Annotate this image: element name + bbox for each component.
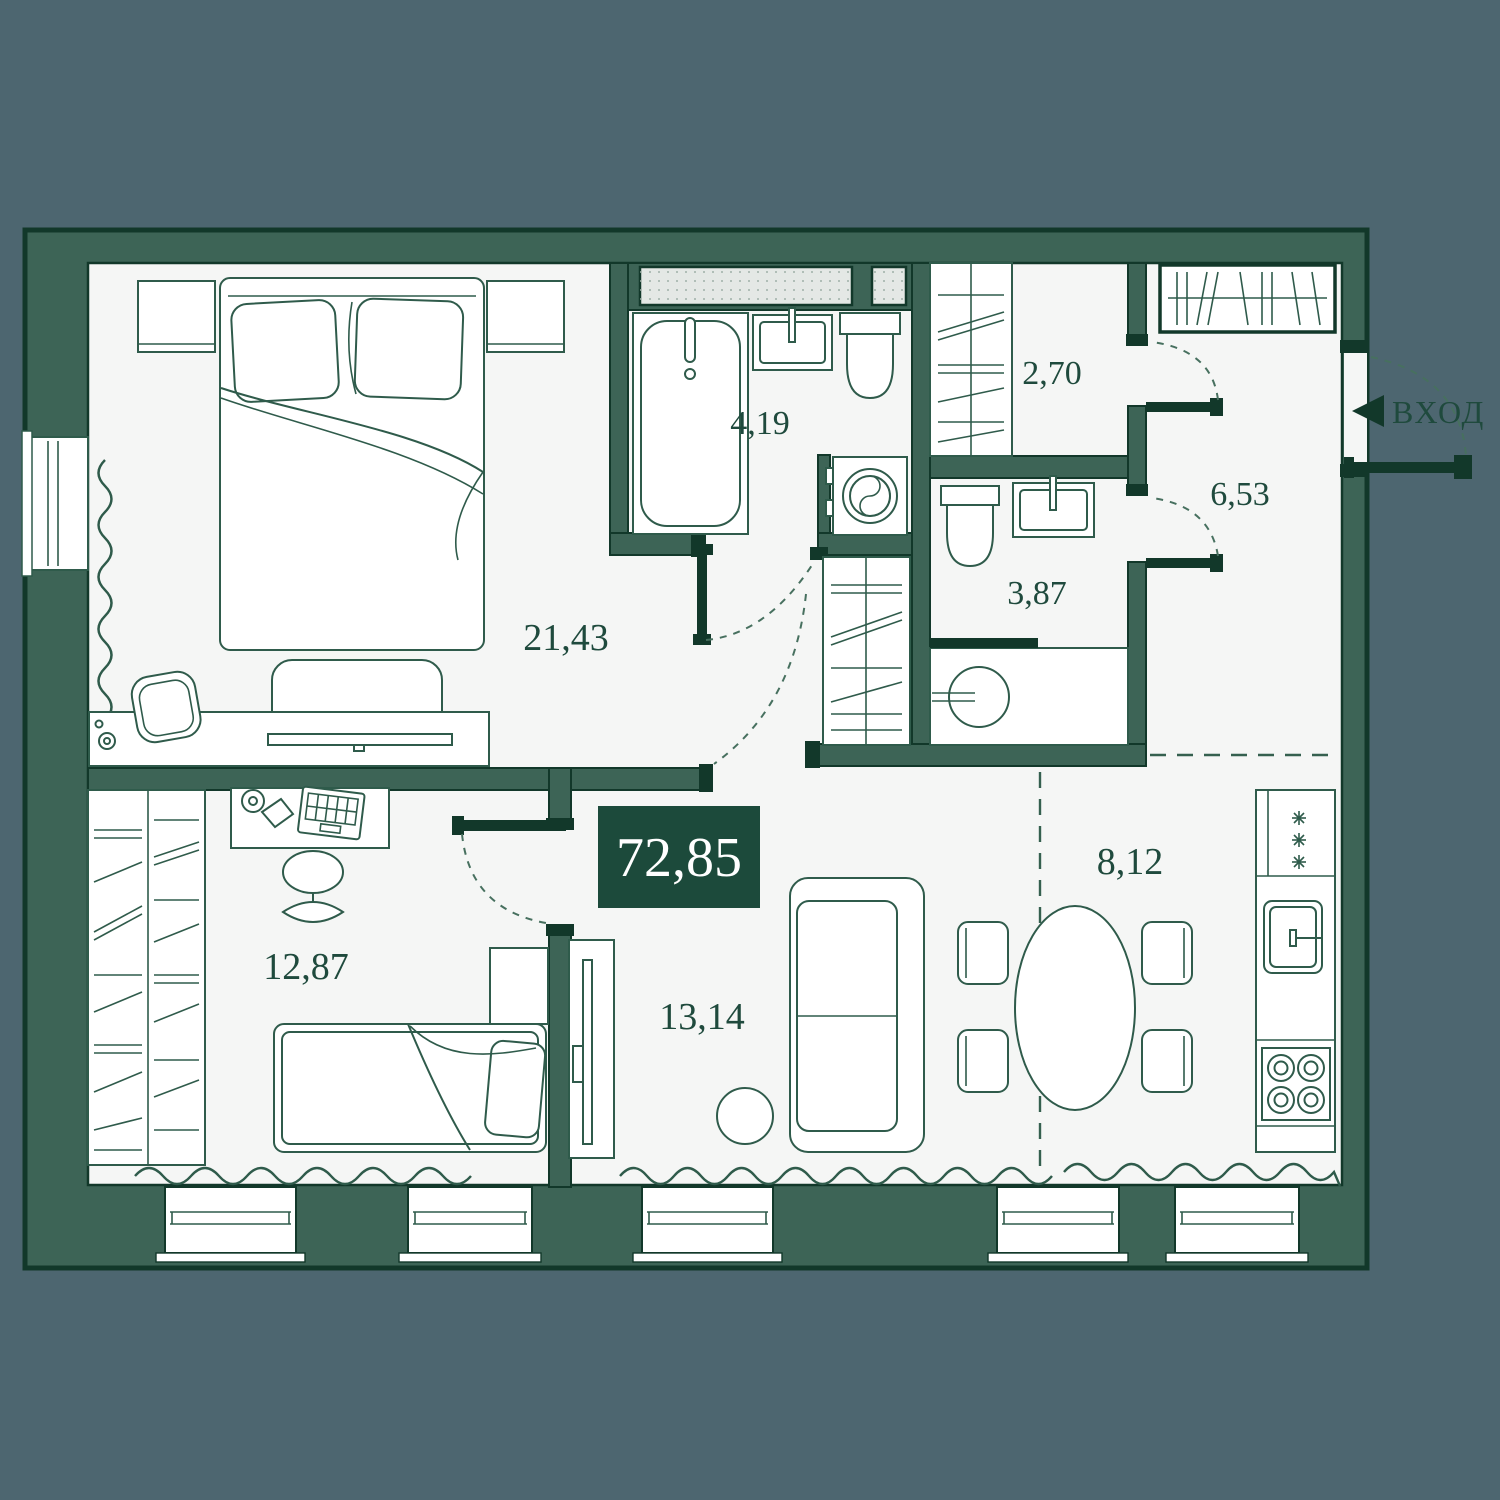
floor-plan-page: 21,43 4,19 2,70 6,53 3,87 12,87 13,14 8,…: [0, 0, 1500, 1500]
desk-chair: [283, 851, 343, 922]
hallway-wardrobe: [1160, 265, 1335, 332]
desk: [231, 786, 389, 848]
single-bed: [274, 1024, 546, 1152]
room-area-label: 12,87: [263, 946, 349, 988]
shower: [930, 638, 1128, 745]
entrance-label: ВХОД: [1392, 394, 1485, 430]
washing-machine: [826, 457, 907, 535]
total-area-badge: 72,85: [598, 806, 760, 908]
left-window: [22, 431, 88, 576]
corridor-wardrobe: [823, 557, 910, 745]
office-chair: [129, 669, 203, 745]
sofa: [790, 878, 924, 1152]
room-area-label: 2,70: [1022, 355, 1082, 392]
room-area-label: 4,19: [730, 405, 790, 442]
double-bed: [220, 278, 484, 650]
side-table: [717, 1088, 773, 1144]
nightstand: [490, 948, 548, 1024]
toilet: [941, 486, 999, 566]
stove: [1262, 1048, 1330, 1120]
kitchen-sink: [1264, 901, 1322, 973]
closet-wardrobe: [930, 263, 1012, 456]
room-area-label: 3,87: [1007, 575, 1067, 612]
laptop-icon: [298, 786, 365, 839]
room-area-label: 13,14: [659, 996, 745, 1038]
window: [1166, 1187, 1308, 1262]
floor-plan-canvas: 21,43 4,19 2,70 6,53 3,87 12,87 13,14 8,…: [0, 0, 1500, 1500]
total-area-value: 72,85: [616, 827, 742, 889]
window: [156, 1187, 305, 1262]
room-area-label: 8,12: [1097, 841, 1164, 883]
window: [988, 1187, 1128, 1262]
shower-sink: [1013, 476, 1094, 537]
window: [633, 1187, 782, 1262]
bathroom-sink: [753, 308, 832, 370]
bedroom-wardrobe: [88, 790, 205, 1165]
window: [399, 1187, 541, 1262]
dining-chair: [958, 1030, 1008, 1092]
room-area-label: 21,43: [523, 617, 609, 659]
nightstand: [487, 281, 564, 352]
room-area-label: 6,53: [1210, 476, 1270, 513]
dining-chair: [958, 922, 1008, 984]
dining-chair: [1142, 1030, 1192, 1092]
nightstand: [138, 281, 215, 352]
dining-table: [1015, 906, 1135, 1110]
dining-chair: [1142, 922, 1192, 984]
tv-unit: [569, 940, 614, 1158]
